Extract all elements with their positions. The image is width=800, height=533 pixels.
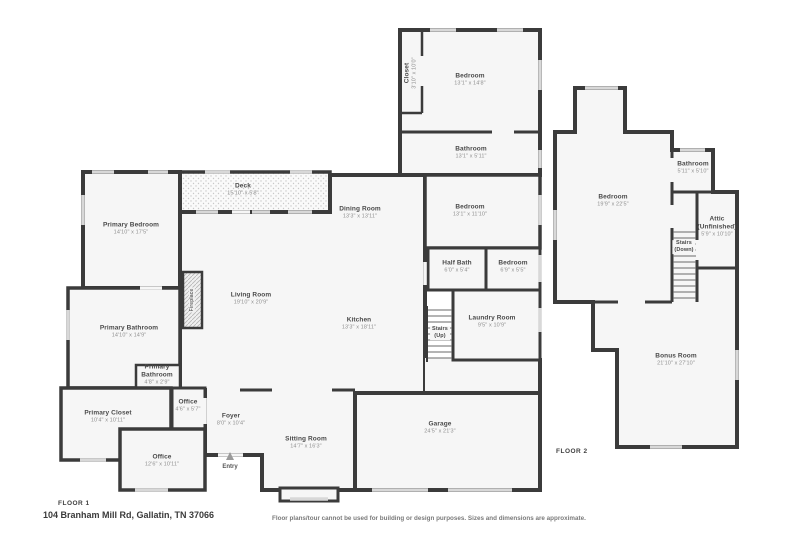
room-label-bonus: Bonus Room 21'10" x 27'10" bbox=[655, 352, 696, 367]
room-dims: 12'6" x 10'11" bbox=[145, 461, 179, 468]
room-label-bedroom-mid: Bedroom 13'1" x 11'10" bbox=[453, 203, 487, 218]
room-dims: 14'10" x 17'5" bbox=[103, 229, 159, 236]
room-name: Bonus Room bbox=[655, 352, 696, 360]
room-name: Primary Closet bbox=[84, 409, 131, 417]
room-label-laundry: Laundry Room 9'5" x 10'9" bbox=[468, 314, 515, 329]
room-name: Office bbox=[145, 453, 179, 461]
room-dims: 13'1" x 11'10" bbox=[453, 211, 487, 218]
room-name: Office bbox=[175, 398, 200, 406]
room-label-primary-bedroom: Primary Bedroom 14'10" x 17'5" bbox=[103, 221, 159, 236]
room-dims: 14'7" x 16'3" bbox=[285, 443, 327, 450]
room-name: Primary Bathroom bbox=[132, 363, 182, 379]
room-label-stairs-down: Stairs (Down) bbox=[672, 240, 695, 254]
room-name: Bathroom bbox=[677, 160, 709, 168]
room-label-dining: Dining Room 13'3" x 13'11" bbox=[339, 205, 381, 220]
room-name: Primary Bathroom bbox=[100, 324, 158, 332]
room-dims: 13'3" x 18'11" bbox=[342, 324, 376, 331]
room-name: Bathroom bbox=[455, 145, 487, 153]
room-dims: 13'1" x 14'8" bbox=[454, 80, 485, 87]
room-dims: 9'5" x 10'9" bbox=[468, 322, 515, 329]
room-name: Bedroom bbox=[498, 259, 527, 267]
room-label-sitting: Sitting Room 14'7" x 16'3" bbox=[285, 435, 327, 450]
room-dims: 19'10" x 20'9" bbox=[231, 299, 271, 306]
room-label-living: Living Room 19'10" x 20'9" bbox=[231, 291, 271, 306]
room-label-stairs-up: Stairs (Up) bbox=[430, 326, 450, 340]
room-label-kitchen: Kitchen 13'3" x 18'11" bbox=[342, 316, 376, 331]
room-label-half-bath: Half Bath 6'0" x 5'4" bbox=[442, 259, 471, 274]
room-dims: 8'0" x 10'4" bbox=[217, 420, 245, 427]
room-name: Laundry Room bbox=[468, 314, 515, 322]
room-dims: 4'8" x 2'9" bbox=[132, 380, 182, 387]
room-dims: 5'11" x 5'10" bbox=[677, 168, 709, 175]
room-label-bedroom-top: Bedroom 13'1" x 14'8" bbox=[454, 72, 485, 87]
room-dims: 13'3" x 13'11" bbox=[339, 213, 381, 220]
room-dims: 5'9" x 10'10" bbox=[697, 232, 736, 239]
room-name: Bedroom bbox=[597, 193, 628, 201]
disclaimer-text: Floor plans/tour cannot be used for buil… bbox=[272, 515, 586, 522]
room-dims: 15'10" x 5'8" bbox=[227, 190, 258, 197]
garage-room bbox=[355, 393, 540, 490]
room-dims: 21'10" x 27'10" bbox=[655, 360, 696, 367]
room-label-primary-bathroom-small: Primary Bathroom 4'8" x 2'9" bbox=[132, 363, 182, 386]
room-dims: 13'1" x 5'11" bbox=[455, 153, 487, 160]
room-dims: 6'0" x 5'4" bbox=[442, 267, 471, 274]
room-label-closet: Closet 3'10" x 10'0" bbox=[403, 57, 418, 88]
room-label-attic: Attic (Unfinished) 5'9" x 10'10" bbox=[697, 215, 736, 238]
room-name: Foyer bbox=[217, 412, 245, 420]
room-dims: 24'5" x 21'3" bbox=[424, 428, 455, 435]
room-name: Sitting Room bbox=[285, 435, 327, 443]
room-dims: 6'9" x 5'5" bbox=[498, 267, 527, 274]
room-name: Deck bbox=[227, 182, 258, 190]
room-label-deck: Deck 15'10" x 5'8" bbox=[227, 182, 258, 197]
room-name: Bedroom bbox=[453, 203, 487, 211]
room-label-primary-bathroom: Primary Bathroom 14'10" x 14'9" bbox=[100, 324, 158, 339]
room-name: Half Bath bbox=[442, 259, 471, 267]
room-label-primary-closet: Primary Closet 10'4" x 10'11" bbox=[84, 409, 131, 424]
room-dims: 3'10" x 10'0" bbox=[411, 57, 418, 88]
room-name: Entry bbox=[222, 464, 237, 470]
room-name: Stairs bbox=[430, 326, 450, 333]
room-name: Garage bbox=[424, 420, 455, 428]
floor2-walls bbox=[555, 88, 737, 447]
room-label-foyer: Foyer 8'0" x 10'4" bbox=[217, 412, 245, 427]
room-dims: 14'10" x 14'9" bbox=[100, 332, 158, 339]
room-sub: (Down) bbox=[672, 247, 695, 254]
floor-plan-drawing bbox=[0, 0, 800, 533]
floor-plan-page: Closet 3'10" x 10'0" Bedroom 13'1" x 14'… bbox=[0, 0, 800, 533]
floor1-label: FLOOR 1 bbox=[58, 500, 90, 507]
room-name: Attic bbox=[697, 215, 736, 223]
room-sub: (Up) bbox=[430, 333, 450, 340]
room-label-bedroom-small: Bedroom 6'9" x 5'5" bbox=[498, 259, 527, 274]
room-name: Kitchen bbox=[342, 316, 376, 324]
room-name: Stairs bbox=[672, 240, 695, 247]
room-sub: (Unfinished) bbox=[697, 223, 736, 231]
room-name: Dining Room bbox=[339, 205, 381, 213]
room-name: Bedroom bbox=[454, 72, 485, 80]
room-label-office-large: Office 12'6" x 10'11" bbox=[145, 453, 179, 468]
room-name: Fireplace bbox=[189, 288, 195, 313]
room-label-office-small: Office 4'6" x 5'7" bbox=[175, 398, 200, 413]
room-name: Closet bbox=[403, 57, 411, 88]
room-name: Living Room bbox=[231, 291, 271, 299]
room-label-bedroom2: Bedroom 19'9" x 22'5" bbox=[597, 193, 628, 208]
room-dims: 19'9" x 22'5" bbox=[597, 201, 628, 208]
room-label-fireplace: Fireplace bbox=[189, 288, 195, 313]
hall-area bbox=[425, 358, 538, 393]
room-name: Primary Bedroom bbox=[103, 221, 159, 229]
room-label-bathroom-top: Bathroom 13'1" x 5'11" bbox=[455, 145, 487, 160]
room-label-bathroom2: Bathroom 5'11" x 5'10" bbox=[677, 160, 709, 175]
property-address: 104 Branham Mill Rd, Gallatin, TN 37066 bbox=[43, 510, 214, 520]
room-label-garage: Garage 24'5" x 21'3" bbox=[424, 420, 455, 435]
room-dims: 10'4" x 10'11" bbox=[84, 417, 131, 424]
room-dims: 4'6" x 5'7" bbox=[175, 406, 200, 413]
entry-label: Entry bbox=[222, 464, 237, 470]
floor2-label: FLOOR 2 bbox=[556, 448, 588, 455]
